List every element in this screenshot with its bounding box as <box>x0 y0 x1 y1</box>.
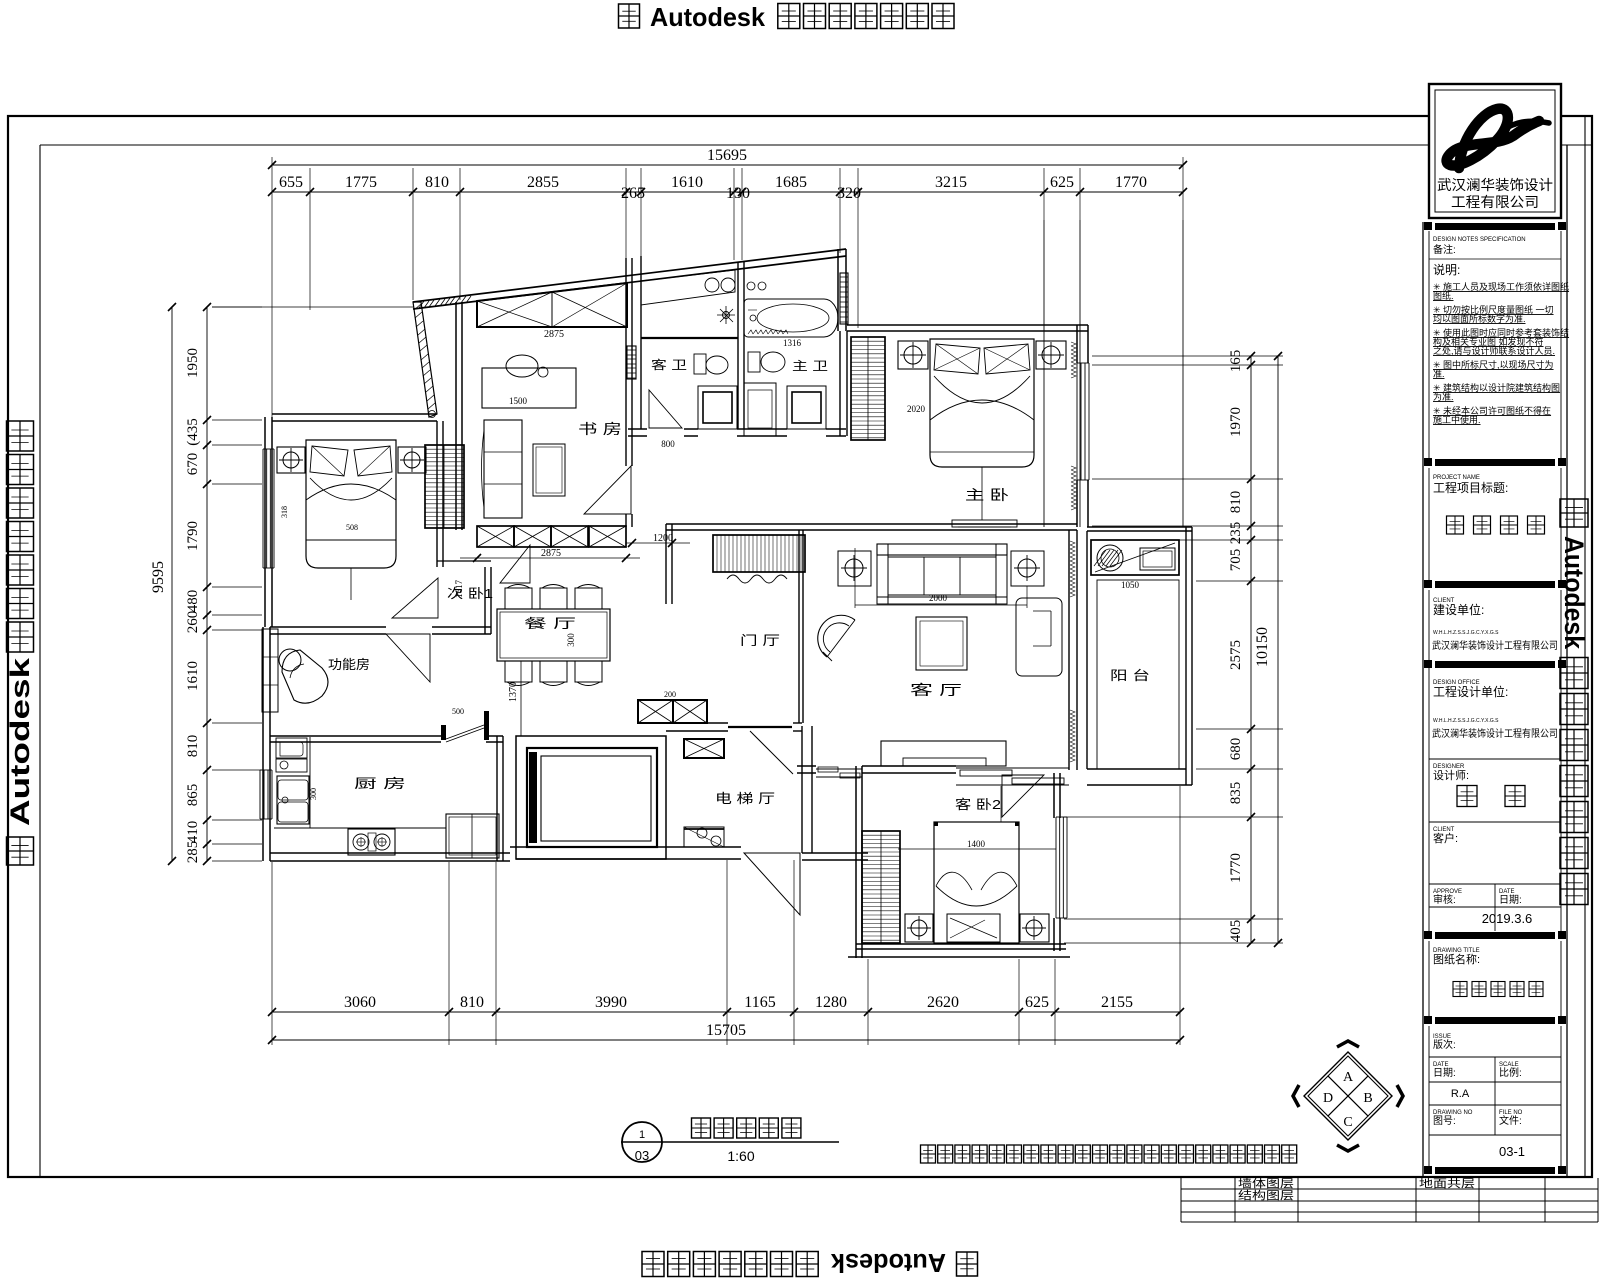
svg-text:410: 410 <box>185 821 201 844</box>
svg-text:625: 625 <box>1025 994 1049 1011</box>
svg-text:680: 680 <box>1228 738 1244 761</box>
svg-text:设计师:: 设计师: <box>1433 769 1469 782</box>
svg-text:功能房: 功能房 <box>328 657 370 672</box>
svg-text:武汉澜华装饰设计: 武汉澜华装饰设计 <box>1437 177 1553 193</box>
svg-text:3990: 3990 <box>595 994 627 1011</box>
svg-text:865: 865 <box>185 784 201 807</box>
svg-text:1970: 1970 <box>1228 407 1244 437</box>
svg-text:1050: 1050 <box>1121 580 1140 590</box>
svg-text:武汉澜华装饰设计工程有限公司: 武汉澜华装饰设计工程有限公司 <box>1432 639 1558 652</box>
svg-text:265: 265 <box>621 185 645 202</box>
svg-text:书 房: 书 房 <box>578 421 622 437</box>
svg-text:1610: 1610 <box>185 661 201 691</box>
svg-text:门 厅: 门 厅 <box>740 633 780 648</box>
svg-text:工程设计单位:: 工程设计单位: <box>1433 684 1508 699</box>
svg-text:10150: 10150 <box>1254 627 1271 667</box>
svg-text:比例:: 比例: <box>1499 1066 1522 1079</box>
svg-text:1617: 1617 <box>454 580 464 599</box>
svg-text:2155: 2155 <box>1101 994 1133 1011</box>
svg-text:2019.3.6: 2019.3.6 <box>1482 911 1533 926</box>
svg-text:图号:: 图号: <box>1433 1115 1456 1127</box>
svg-text:1500: 1500 <box>509 396 528 406</box>
svg-text:1950: 1950 <box>185 348 201 378</box>
svg-text:2000: 2000 <box>929 593 948 603</box>
svg-text:9595: 9595 <box>150 561 167 593</box>
svg-text:625: 625 <box>1050 174 1074 191</box>
svg-text:阳 台: 阳 台 <box>1110 668 1150 683</box>
svg-text:300: 300 <box>566 633 576 647</box>
svg-text:D: D <box>1323 1091 1333 1106</box>
svg-text:均以图面所标数字为准.: 均以图面所标数字为准. <box>1433 313 1526 324</box>
svg-text:2575: 2575 <box>1228 640 1244 670</box>
svg-text:130: 130 <box>726 185 750 202</box>
svg-text:1770: 1770 <box>1228 853 1244 883</box>
svg-text:1610: 1610 <box>671 174 703 191</box>
svg-text:准.: 准. <box>1433 369 1445 379</box>
svg-text:厨 房: 厨 房 <box>354 776 406 791</box>
svg-text:1: 1 <box>639 1129 645 1141</box>
svg-text:(435: (435 <box>185 418 201 446</box>
svg-text:结构图层: 结构图层 <box>1238 1188 1294 1202</box>
svg-text:15705: 15705 <box>706 1022 746 1039</box>
svg-text:之处,请与设计师联系设计人员.: 之处,请与设计师联系设计人员. <box>1433 345 1555 356</box>
svg-text:✳ 图中所标尺寸,以现场尺寸为: ✳ 图中所标尺寸,以现场尺寸为 <box>1433 359 1554 370</box>
svg-text:版次:: 版次: <box>1433 1038 1456 1051</box>
svg-text:客 厅: 客 厅 <box>910 682 962 698</box>
svg-text:文件:: 文件: <box>1499 1114 1522 1127</box>
svg-text:260: 260 <box>185 611 201 634</box>
svg-text:1:60: 1:60 <box>727 1148 754 1164</box>
svg-text:R.A: R.A <box>1451 1088 1470 1100</box>
svg-text:A: A <box>1343 1070 1354 1085</box>
svg-text:主 卫: 主 卫 <box>792 359 828 373</box>
svg-text:1200: 1200 <box>653 533 673 544</box>
svg-text:客户:: 客户: <box>1433 831 1458 845</box>
svg-text:2020: 2020 <box>907 404 926 414</box>
svg-text:DESIGN NOTES SPECIFICATION: DESIGN NOTES SPECIFICATION <box>1433 237 1526 243</box>
svg-text:300: 300 <box>309 788 318 800</box>
svg-text:C: C <box>1343 1115 1352 1130</box>
svg-text:235: 235 <box>1228 522 1244 545</box>
svg-text:835: 835 <box>1228 782 1244 805</box>
svg-text:1370: 1370 <box>508 682 519 702</box>
svg-text:03: 03 <box>635 1148 649 1163</box>
svg-text:318: 318 <box>280 506 289 518</box>
svg-text:施工中使用.: 施工中使用. <box>1433 414 1481 425</box>
svg-text:说明:: 说明: <box>1433 262 1460 277</box>
svg-text:图纸.: 图纸. <box>1433 290 1454 301</box>
svg-text:2875: 2875 <box>541 548 561 559</box>
svg-text:图纸名称:: 图纸名称: <box>1433 952 1480 966</box>
svg-text:3060: 3060 <box>344 994 376 1011</box>
svg-text:285: 285 <box>185 841 201 864</box>
svg-text:墙体图层: 墙体图层 <box>1238 1176 1294 1190</box>
svg-text:2855: 2855 <box>527 174 559 191</box>
svg-text:1775: 1775 <box>345 174 377 191</box>
svg-text:地面共层: 地面共层 <box>1419 1177 1475 1190</box>
svg-text:为准.: 为准. <box>1433 391 1454 402</box>
svg-text:1280: 1280 <box>815 994 847 1011</box>
svg-text:1685: 1685 <box>775 174 807 191</box>
svg-text:810: 810 <box>185 735 201 758</box>
svg-text:1770: 1770 <box>1115 174 1147 191</box>
svg-text:320: 320 <box>837 185 861 202</box>
svg-text:武汉澜华装饰设计工程有限公司: 武汉澜华装饰设计工程有限公司 <box>1432 727 1558 740</box>
svg-text:审核:: 审核: <box>1433 893 1456 906</box>
svg-text:810: 810 <box>425 174 449 191</box>
svg-text:500: 500 <box>452 707 464 716</box>
svg-text:15695: 15695 <box>707 147 747 164</box>
svg-text:主 卧: 主 卧 <box>965 487 1009 503</box>
svg-text:工程有限公司: 工程有限公司 <box>1451 194 1539 210</box>
svg-text:客 卧2: 客 卧2 <box>955 797 1001 812</box>
svg-text:1790: 1790 <box>185 521 201 551</box>
svg-text:3215: 3215 <box>935 174 967 191</box>
svg-text:Autodesk: Autodesk <box>650 2 766 32</box>
svg-text:405: 405 <box>1228 920 1244 943</box>
svg-text:日期:: 日期: <box>1499 894 1522 906</box>
svg-text:1316: 1316 <box>783 338 802 348</box>
svg-text:客 卫: 客 卫 <box>651 357 687 372</box>
svg-text:200: 200 <box>664 690 676 699</box>
svg-text:Autodesk: Autodesk <box>830 1248 946 1278</box>
svg-text:1165: 1165 <box>744 994 775 1011</box>
svg-text:电 梯 厅: 电 梯 厅 <box>715 791 775 806</box>
svg-text:Autodesk: Autodesk <box>5 657 35 826</box>
svg-text:Autodesk: Autodesk <box>1559 536 1589 650</box>
svg-text:655: 655 <box>279 174 303 191</box>
svg-text:工程项目标题:: 工程项目标题: <box>1433 480 1508 495</box>
svg-text:B: B <box>1363 1091 1372 1106</box>
svg-text:建设单位:: 建设单位: <box>1433 602 1484 617</box>
svg-text:2620: 2620 <box>927 994 959 1011</box>
svg-text:餐 厅: 餐 厅 <box>524 616 576 631</box>
svg-text:670: 670 <box>185 453 201 476</box>
svg-text:480: 480 <box>185 590 201 613</box>
svg-text:1400: 1400 <box>967 839 986 849</box>
svg-text:508: 508 <box>346 523 358 532</box>
svg-text:705: 705 <box>1228 549 1244 572</box>
svg-text:800: 800 <box>661 439 675 449</box>
svg-text:03-1: 03-1 <box>1499 1144 1525 1159</box>
svg-text:810: 810 <box>1228 491 1244 514</box>
svg-text:810: 810 <box>460 994 484 1011</box>
svg-text:W.H.L.H.Z.S.S.J.G.C.Y.X.G.S: W.H.L.H.Z.S.S.J.G.C.Y.X.G.S <box>1433 630 1499 636</box>
svg-text:备注:: 备注: <box>1433 243 1456 256</box>
svg-text:165: 165 <box>1228 350 1244 373</box>
svg-text:日期:: 日期: <box>1433 1067 1456 1079</box>
svg-text:2875: 2875 <box>544 329 564 340</box>
svg-text:W.H.L.H.Z.S.S.J.G.C.Y.X.G.S: W.H.L.H.Z.S.S.J.G.C.Y.X.G.S <box>1433 718 1499 724</box>
